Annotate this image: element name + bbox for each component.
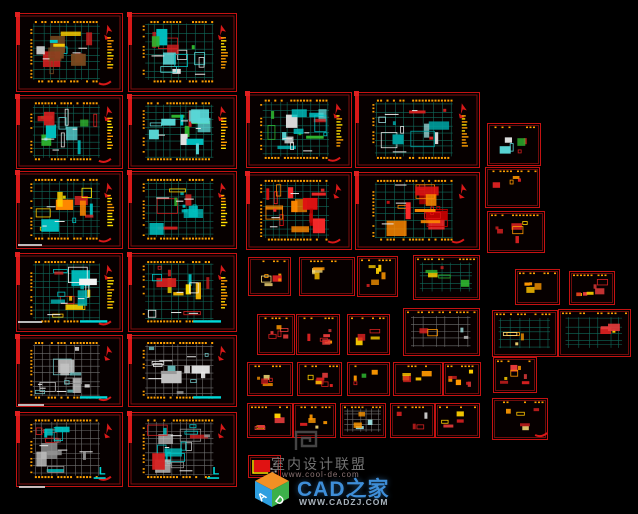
drawing-frame[interactable]: [16, 335, 123, 407]
drawing-content: [391, 404, 434, 437]
frame-corner-mark: [245, 91, 250, 96]
frame-corner-mark: [127, 411, 132, 416]
frame-binding-bar: [128, 253, 132, 285]
drawing-content: [17, 172, 122, 248]
frame-binding-bar: [16, 95, 20, 125]
frame-binding-bar: [128, 335, 132, 364]
drawing-content: [129, 254, 236, 331]
drawing-frame[interactable]: [390, 403, 435, 438]
drawing-frame[interactable]: [246, 172, 352, 250]
drawing-content: [17, 336, 122, 406]
drawing-content: [129, 96, 236, 168]
drawing-frame[interactable]: [128, 95, 237, 169]
frame-corner-mark: [127, 170, 132, 175]
drawing-frame[interactable]: [248, 257, 291, 296]
svg-text:L: L: [212, 465, 219, 477]
drawing-content: [129, 14, 236, 91]
drawing-content: [414, 256, 479, 299]
frame-corner-mark: [15, 334, 20, 339]
drawing-content: [17, 14, 122, 91]
frame-corner-mark: [127, 252, 132, 257]
drawing-content: [247, 173, 351, 249]
frame-corner-mark: [15, 170, 20, 175]
frame-binding-bar: [16, 253, 20, 285]
drawing-content: [436, 404, 479, 437]
drawing-content: [17, 254, 122, 331]
drawing-frame[interactable]: [296, 314, 340, 355]
drawing-frame[interactable]: [435, 403, 480, 438]
drawing-content: [356, 173, 479, 249]
drawing-content: [17, 96, 122, 168]
drawing-content: [248, 363, 292, 395]
drawing-frame[interactable]: L: [16, 412, 123, 487]
drawing-frame[interactable]: [492, 310, 558, 357]
frame-binding-bar: [128, 95, 132, 125]
frame-binding-bar: [16, 13, 20, 45]
drawing-frame[interactable]: [247, 403, 293, 438]
drawing-content: [129, 172, 236, 248]
frame-corner-mark: [127, 334, 132, 339]
drawing-title-text: [19, 486, 45, 488]
drawing-frame[interactable]: [487, 123, 541, 166]
drawing-frame[interactable]: [443, 362, 481, 396]
drawing-frame[interactable]: [355, 172, 480, 250]
drawing-frame[interactable]: [487, 211, 545, 253]
drawing-content: [488, 124, 540, 165]
drawing-content: L: [129, 413, 236, 486]
drawing-content: [247, 93, 351, 167]
drawing-content: [493, 399, 547, 439]
frame-corner-mark: [127, 94, 132, 99]
drawing-frame[interactable]: [492, 398, 548, 440]
drawing-frame[interactable]: L: [128, 412, 237, 487]
cad-canvas: LL 室内设计联盟 www.cool-de.com A D CAD之家 WWW.…: [0, 0, 638, 514]
drawing-title-text: [18, 321, 42, 323]
drawing-content: [494, 358, 536, 392]
frame-corner-mark: [245, 171, 250, 176]
drawing-frame[interactable]: [558, 309, 631, 357]
drawing-title-text: [18, 404, 44, 406]
drawing-content: [298, 363, 341, 395]
drawing-frame[interactable]: [299, 257, 355, 296]
drawing-content: [249, 258, 290, 295]
drawing-frame[interactable]: [128, 13, 237, 92]
drawing-content: [570, 272, 614, 304]
drawing-frame[interactable]: [16, 13, 123, 92]
drawing-content: [297, 315, 339, 354]
drawing-frame[interactable]: [413, 255, 480, 300]
frame-binding-bar: [16, 335, 20, 364]
drawing-frame[interactable]: [515, 269, 560, 305]
drawing-content: [488, 212, 544, 252]
drawing-frame[interactable]: [128, 253, 237, 332]
drawing-content: [358, 257, 397, 296]
frame-binding-bar: [16, 171, 20, 203]
drawing-content: [394, 363, 442, 395]
drawing-content: [341, 404, 385, 437]
drawing-frame[interactable]: [393, 362, 443, 396]
drawing-frame[interactable]: [569, 271, 615, 305]
drawing-content: [300, 258, 354, 295]
frame-corner-mark: [127, 12, 132, 17]
drawing-title-text: [18, 244, 42, 246]
drawing-frame[interactable]: [347, 314, 390, 355]
drawing-content: [444, 363, 480, 395]
cadzj-cube-logo-icon: A D: [251, 471, 293, 514]
drawing-frame[interactable]: [128, 171, 237, 249]
svg-text:L: L: [99, 465, 106, 477]
drawing-content: [248, 404, 292, 437]
frame-binding-bar: [128, 171, 132, 203]
frame-binding-bar: [246, 92, 250, 123]
drawings-layer: LL: [0, 0, 638, 514]
drawing-frame[interactable]: [247, 362, 293, 396]
drawing-frame[interactable]: [297, 362, 342, 396]
ida-maze-logo-icon: [293, 429, 319, 456]
frame-binding-bar: [355, 92, 359, 123]
drawing-content: [129, 336, 236, 406]
frame-corner-mark: [354, 171, 359, 176]
drawing-frame[interactable]: [16, 95, 123, 169]
drawing-frame[interactable]: [485, 167, 540, 208]
drawing-content: [516, 270, 559, 304]
drawing-content: [348, 315, 389, 354]
frame-binding-bar: [128, 412, 132, 443]
drawing-frame[interactable]: [16, 171, 123, 249]
drawing-content: L: [17, 413, 122, 486]
drawing-content: [486, 168, 539, 207]
drawing-frame[interactable]: [347, 362, 390, 396]
watermark-cadzj-site: WWW.CADZJ.COM: [299, 497, 389, 507]
drawing-frame[interactable]: [246, 92, 352, 168]
drawing-content: [559, 310, 630, 356]
frame-binding-bar: [355, 172, 359, 204]
frame-corner-mark: [15, 411, 20, 416]
drawing-frame[interactable]: [493, 357, 537, 393]
drawing-content: [258, 315, 294, 354]
frame-binding-bar: [128, 13, 132, 45]
drawing-content: [404, 309, 479, 355]
drawing-content: [348, 363, 389, 395]
drawing-frame[interactable]: [357, 256, 398, 297]
drawing-frame[interactable]: [128, 335, 237, 407]
drawing-frame[interactable]: [355, 92, 480, 168]
frame-binding-bar: [16, 412, 20, 443]
drawing-frame[interactable]: [257, 314, 295, 355]
drawing-frame[interactable]: [403, 308, 480, 356]
drawing-content: [356, 93, 479, 167]
drawing-content: [493, 311, 557, 356]
frame-corner-mark: [15, 252, 20, 257]
drawing-frame[interactable]: [340, 403, 386, 438]
frame-corner-mark: [15, 94, 20, 99]
frame-corner-mark: [15, 12, 20, 17]
frame-binding-bar: [246, 172, 250, 204]
frame-corner-mark: [354, 91, 359, 96]
